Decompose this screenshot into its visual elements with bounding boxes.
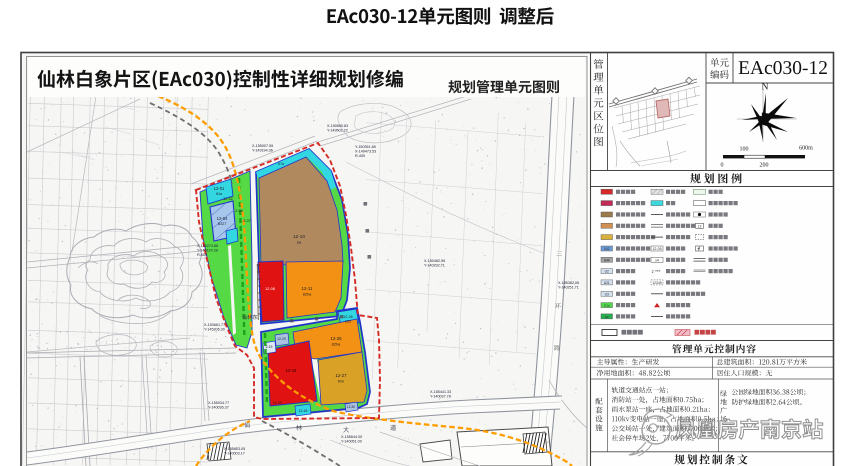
svg-text:12-01: 12-01 <box>214 186 225 191</box>
svg-text:Y-140037.78: Y-140037.78 <box>430 394 451 398</box>
svg-text:67a: 67a <box>278 162 284 166</box>
svg-text:12345: 12345 <box>652 281 662 285</box>
svg-text:200: 200 <box>760 163 769 169</box>
svg-text:R-400: R-400 <box>355 154 365 158</box>
svg-text:Rm: Rm <box>338 380 344 384</box>
svg-text:61a: 61a <box>216 192 222 196</box>
svg-text:2-19: 2-19 <box>266 345 273 349</box>
svg-text:12-27: 12-27 <box>335 373 347 378</box>
svg-text:Y-140051.00: Y-140051.00 <box>341 439 362 443</box>
svg-text:X-155441.33: X-155441.33 <box>430 390 451 394</box>
svg-text:12-20: 12-20 <box>277 337 286 341</box>
svg-text:U21: U21 <box>604 281 610 285</box>
svg-text:X-150482.96: X-150482.96 <box>424 259 445 263</box>
svg-text:X-149473.53: X-149473.53 <box>355 149 376 153</box>
svg-text:12-04: 12-04 <box>217 216 228 221</box>
svg-text:12-05: 12-05 <box>652 247 661 251</box>
svg-text:X-155034.77: X-155034.77 <box>208 401 229 405</box>
svg-text:S44: S44 <box>604 258 610 262</box>
svg-text:Y-145206.30: Y-145206.30 <box>204 327 225 331</box>
svg-text:12-02: 12-02 <box>223 197 233 201</box>
svg-text:Y-150351.85: Y-150351.85 <box>355 145 376 149</box>
svg-text:Y-140292.71: Y-140292.71 <box>424 263 445 267</box>
svg-text:82ha: 82ha <box>332 343 341 347</box>
svg-text:13: 13 <box>698 224 702 228</box>
svg-text:2-07: 2-07 <box>243 219 251 223</box>
svg-text:X-155273.88: X-155273.88 <box>197 244 218 248</box>
svg-text:100: 100 <box>740 147 749 153</box>
svg-text:U52: U52 <box>345 320 351 324</box>
svg-text:12-10: 12-10 <box>293 234 305 239</box>
svg-text:Y-140251.71: Y-140251.71 <box>558 285 579 289</box>
svg-text:U2: U2 <box>605 270 609 274</box>
svg-text:12-30: 12-30 <box>347 405 355 409</box>
svg-text:X-155007.55: X-155007.55 <box>252 144 273 148</box>
svg-text:Y-140036.37: Y-140036.37 <box>208 405 229 409</box>
svg-text:82ha: 82ha <box>303 293 312 297</box>
svg-text:X-153661.77: X-153661.77 <box>204 323 225 327</box>
svg-text:X-150690.83: X-150690.83 <box>327 124 348 128</box>
svg-text:Y-149502.22: Y-149502.22 <box>327 128 348 132</box>
svg-text:X-155644.00: X-155644.00 <box>341 435 362 439</box>
svg-text:2-06: 2-06 <box>235 209 243 213</box>
svg-text:12-25: 12-25 <box>330 336 342 341</box>
svg-text:Y-149124.38: Y-149124.38 <box>197 248 218 252</box>
svg-text:12-26: 12-26 <box>343 315 352 319</box>
svg-text:Y-140003.17: Y-140003.17 <box>224 451 245 455</box>
svg-text:G1a: G1a <box>604 304 610 308</box>
svg-text:B327: B327 <box>218 222 226 226</box>
svg-text:12-15: 12-15 <box>273 401 282 405</box>
svg-text:U3: U3 <box>605 292 609 296</box>
svg-text:X-155603.05: X-155603.05 <box>224 447 245 451</box>
svg-text:12-08: 12-08 <box>265 287 275 291</box>
svg-text:X-155382.06: X-155382.06 <box>558 281 579 285</box>
svg-text:S42: S42 <box>604 247 610 251</box>
svg-text:z ***: z *** <box>652 269 661 274</box>
svg-text:0: 0 <box>721 163 724 169</box>
svg-text:x4: x4 <box>655 258 659 262</box>
svg-text:12-16: 12-16 <box>286 368 297 373</box>
svg-text:12-18: 12-18 <box>299 409 308 413</box>
svg-text:12-11: 12-11 <box>302 286 313 291</box>
svg-text:R-600: R-600 <box>197 253 207 257</box>
svg-text:Y-149194.36: Y-149194.36 <box>252 148 273 152</box>
svg-text:600m: 600m <box>799 146 813 152</box>
svg-text:G2: G2 <box>605 315 609 319</box>
